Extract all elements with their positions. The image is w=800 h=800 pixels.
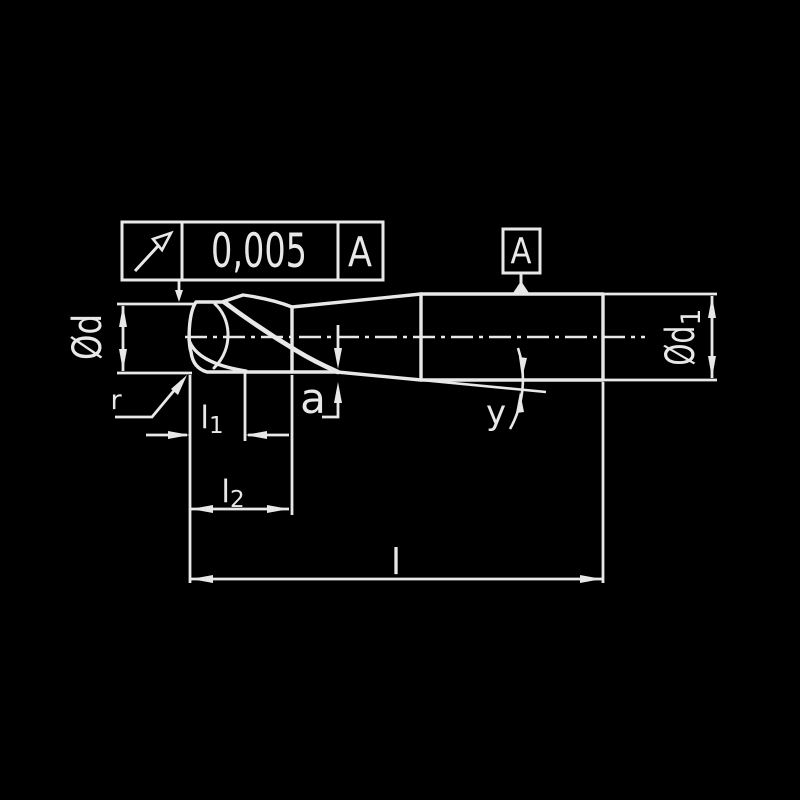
dim-d1-label: Ød1 xyxy=(658,308,707,365)
dim-angle-y: y xyxy=(421,348,546,433)
dim-a-arrow-down xyxy=(334,348,342,369)
dim-l2-arrow-right xyxy=(267,505,289,513)
dim-l1-label: l1 xyxy=(200,400,223,439)
dim-l2-arrow-left xyxy=(191,505,213,513)
dim-cut-length: l2 xyxy=(191,375,292,515)
radius-leader-shelf xyxy=(115,381,182,417)
dim-d1-arrow-down xyxy=(708,356,716,378)
dim-flute-length: l1 xyxy=(146,373,289,583)
dim-a-arrow-up xyxy=(334,382,342,403)
dim-l2-label: l2 xyxy=(221,474,244,513)
datum-letter: A xyxy=(511,231,532,272)
dim-l1-arrow-right xyxy=(245,431,267,439)
dim-a-label: a xyxy=(300,374,326,423)
dim-d-label: Ød xyxy=(65,314,111,360)
dim-d1-arrow-up xyxy=(708,296,716,318)
dim-l-arrow-left xyxy=(191,575,213,583)
dim-r-label: r xyxy=(110,385,122,416)
taper-extension-line xyxy=(421,380,546,392)
dim-l-label: l xyxy=(391,542,401,583)
dim-d-arrow-up xyxy=(119,305,127,327)
dim-radius-r: r xyxy=(110,375,187,417)
runout-arrow-icon xyxy=(135,246,158,271)
cutter-body xyxy=(185,294,645,380)
dim-d-arrow-down xyxy=(119,349,127,371)
end-mill-dimension-drawing: 0,005 A A Ød Ød1 xyxy=(0,0,800,800)
dim-l1-arrow-left xyxy=(168,431,190,439)
dim-l-arrow-right xyxy=(580,575,602,583)
dim-overall-length: l xyxy=(191,382,603,583)
datum-triangle-icon xyxy=(513,281,529,293)
tolerance-leader-arrowhead xyxy=(175,290,183,302)
dim-y-label: y xyxy=(486,393,506,433)
tolerance-frame: 0,005 A xyxy=(122,222,383,302)
tolerance-value: 0,005 xyxy=(211,224,307,279)
tolerance-datum-ref: A xyxy=(348,228,372,276)
dim-head-diameter: Ød xyxy=(65,304,196,373)
dim-step-a: a xyxy=(300,325,342,423)
datum-flag: A xyxy=(503,229,540,293)
